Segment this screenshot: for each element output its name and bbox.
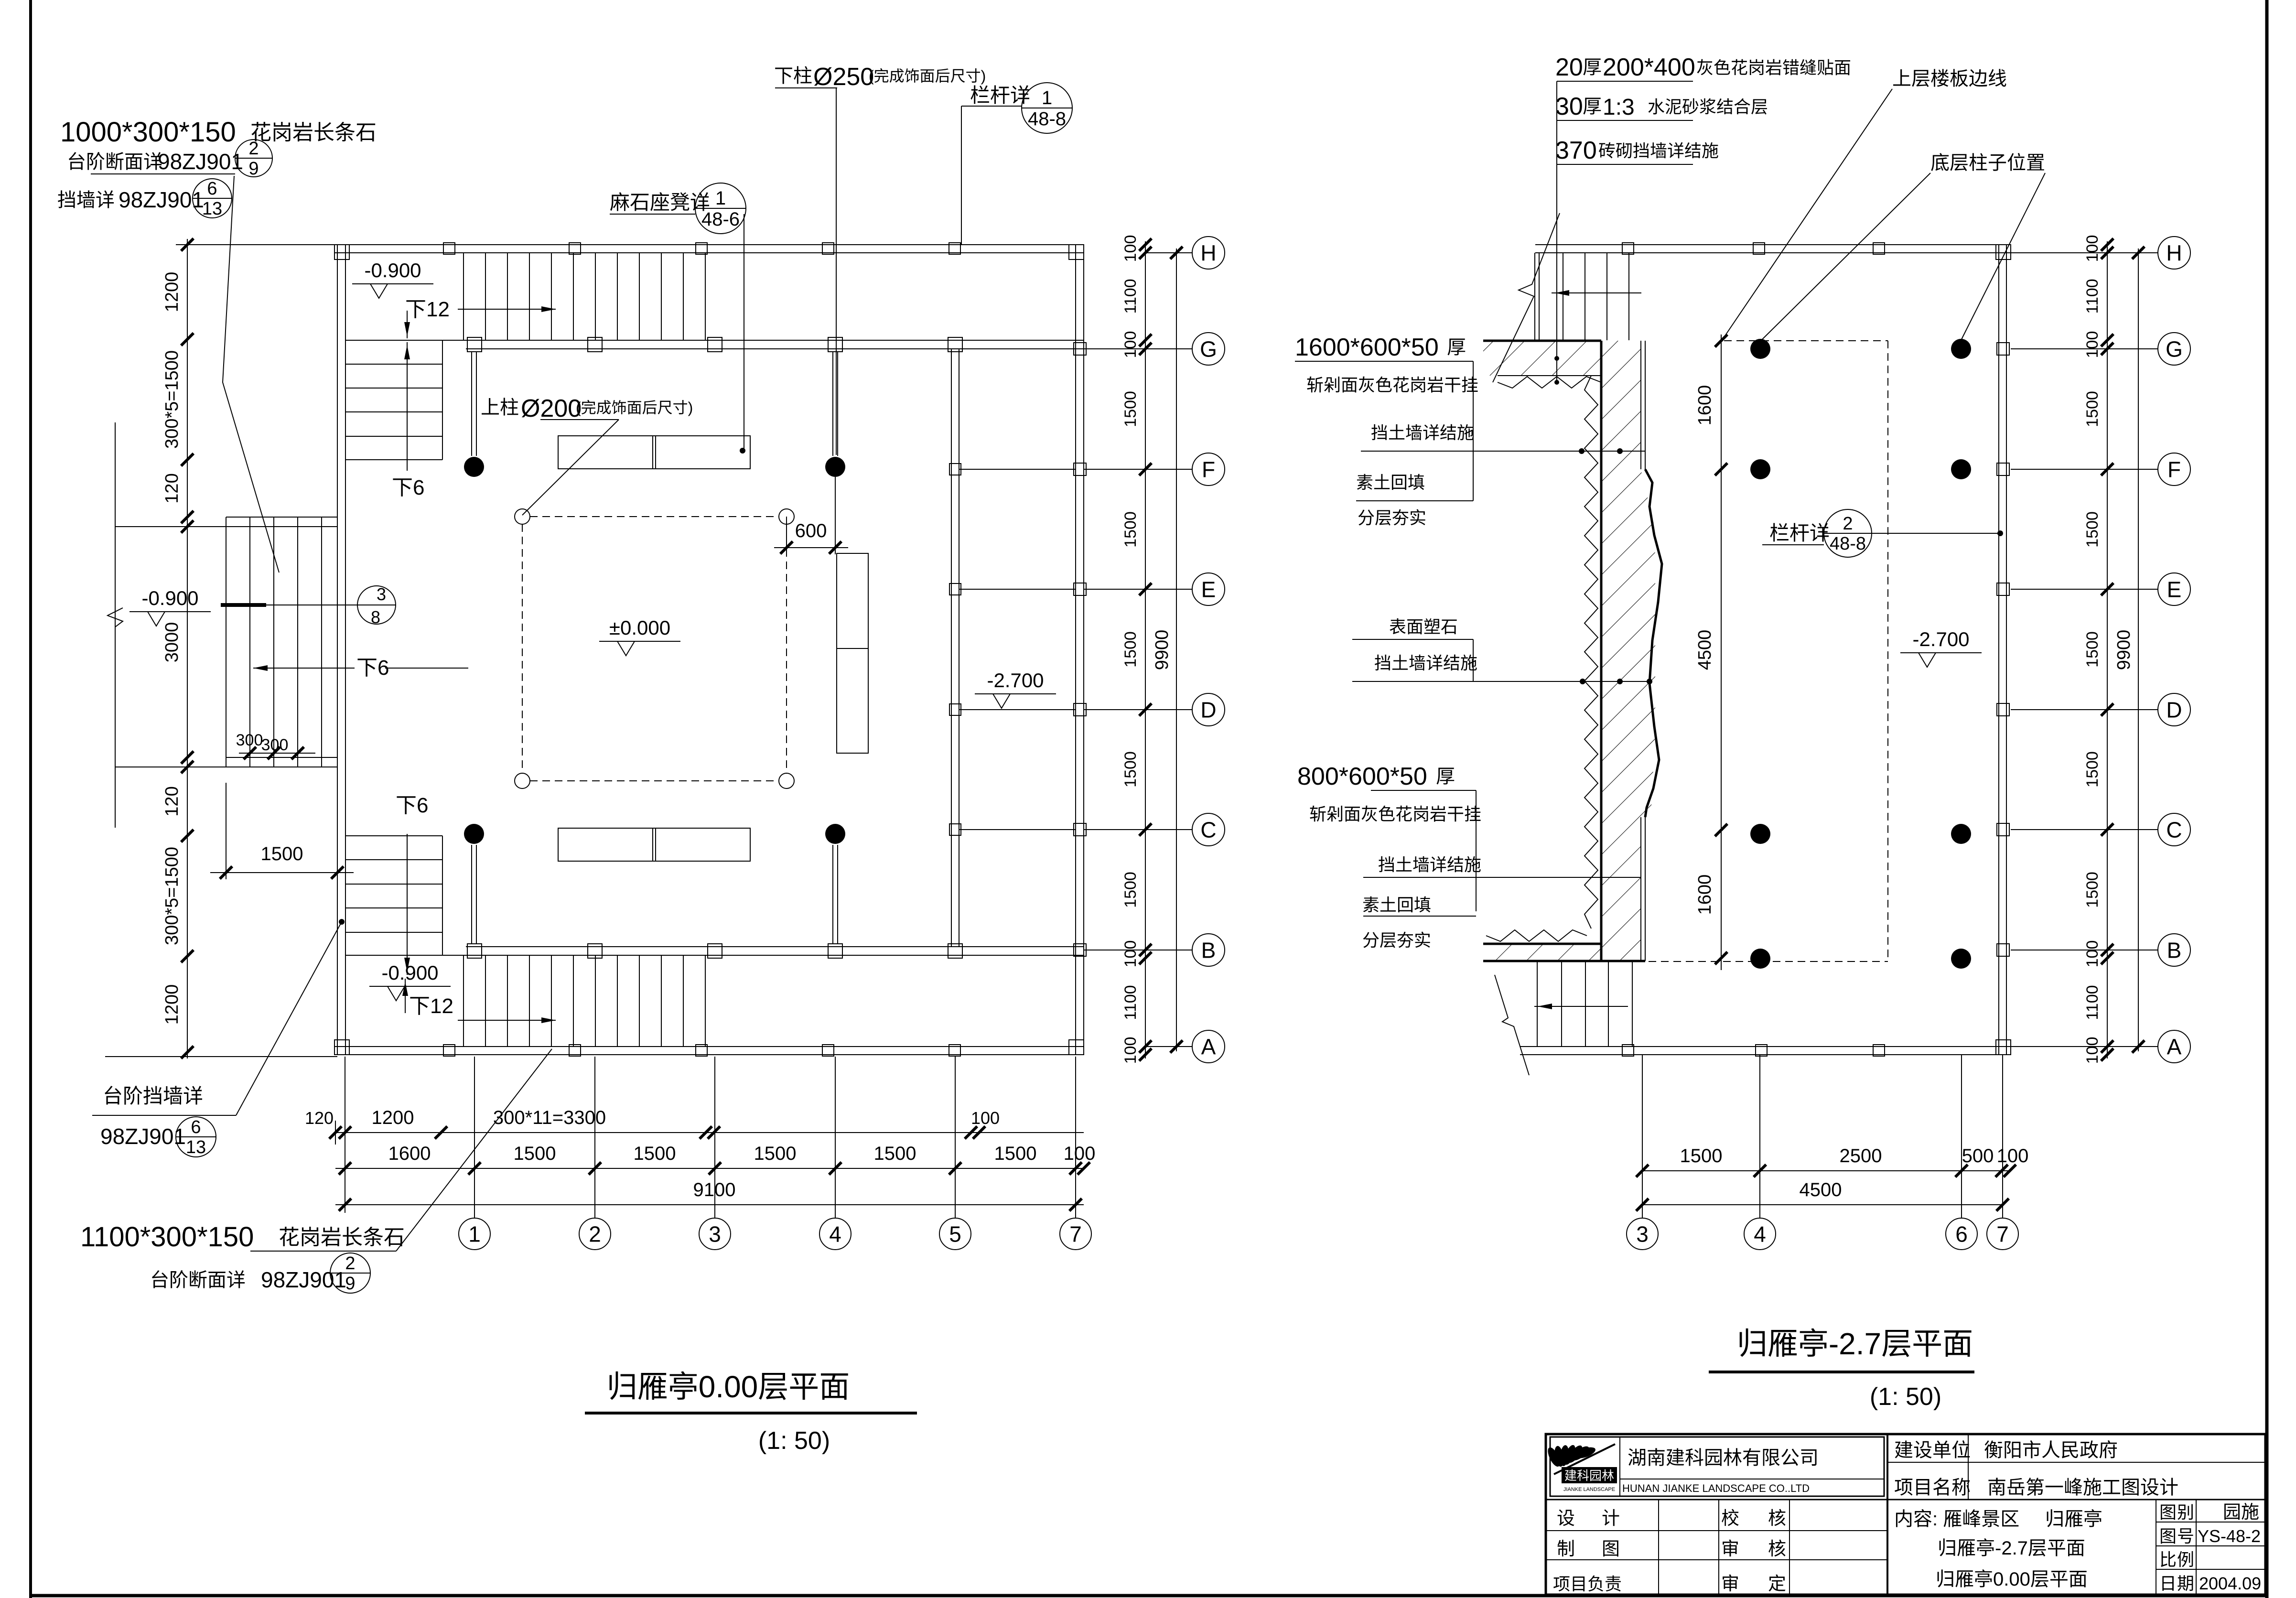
svg-text:下柱: 下柱: [774, 65, 812, 86]
svg-text:C: C: [2166, 818, 2182, 842]
svg-text:48-8: 48-8: [1028, 108, 1066, 130]
svg-text:B: B: [2167, 938, 2182, 963]
svg-text:100: 100: [1121, 331, 1140, 358]
svg-text:1: 1: [1042, 87, 1052, 108]
svg-text:2500: 2500: [1840, 1145, 1882, 1166]
svg-text:挡土墙详结施: 挡土墙详结施: [1374, 653, 1477, 673]
svg-text:上层楼板边线: 上层楼板边线: [1892, 68, 2007, 89]
svg-text:厚: 厚: [1583, 57, 1602, 78]
svg-text:湖南建科园林有限公司: 湖南建科园林有限公司: [1628, 1447, 1819, 1468]
svg-text:9900: 9900: [1152, 630, 1172, 670]
svg-text:期: 期: [2177, 1574, 2194, 1593]
svg-text:E: E: [1201, 577, 1216, 602]
svg-text:98ZJ901: 98ZJ901: [261, 1267, 346, 1292]
svg-text:100: 100: [1997, 1145, 2029, 1166]
svg-text:1600: 1600: [1695, 385, 1715, 426]
svg-text:1100: 1100: [1121, 985, 1140, 1020]
svg-text:砖砌挡墙详结施: 砖砌挡墙详结施: [1598, 141, 1719, 161]
svg-text:1200: 1200: [162, 272, 182, 313]
svg-text:定: 定: [1768, 1574, 1786, 1594]
svg-text:-2.700: -2.700: [987, 669, 1044, 691]
svg-text:6: 6: [1955, 1222, 1968, 1247]
svg-text:建科园林: 建科园林: [1564, 1468, 1614, 1483]
svg-text:1500: 1500: [1680, 1145, 1723, 1166]
svg-text:120: 120: [162, 473, 182, 503]
svg-text:3: 3: [709, 1222, 721, 1247]
svg-text:台阶断面详: 台阶断面详: [150, 1270, 246, 1291]
svg-text:下12: 下12: [409, 994, 453, 1018]
svg-text:300: 300: [261, 736, 289, 754]
svg-text:归雁亭-2.7层平面: 归雁亭-2.7层平面: [1938, 1538, 2085, 1559]
svg-text:1000*300*150: 1000*300*150: [60, 117, 236, 148]
svg-text:计: 计: [1602, 1509, 1620, 1529]
svg-text:9: 9: [345, 1274, 355, 1294]
svg-text:1500: 1500: [1121, 631, 1140, 668]
svg-text:衡阳市人民政府: 衡阳市人民政府: [1984, 1440, 2118, 1461]
svg-text:48-8: 48-8: [1830, 534, 1866, 554]
svg-text:4500: 4500: [1800, 1179, 1842, 1200]
svg-text:核: 核: [1768, 1539, 1786, 1559]
svg-text:校: 校: [1721, 1509, 1739, 1529]
svg-text:2004.09: 2004.09: [2199, 1574, 2261, 1593]
svg-text:YS-48-2: YS-48-2: [2198, 1526, 2261, 1546]
svg-text:100: 100: [2083, 1037, 2102, 1064]
svg-text:斩剁面灰色花岗岩干挂: 斩剁面灰色花岗岩干挂: [1306, 375, 1478, 395]
svg-text:2: 2: [1843, 514, 1853, 534]
svg-text:设: 设: [1557, 1509, 1575, 1529]
svg-text:审: 审: [1721, 1539, 1739, 1559]
svg-text:花岗岩长条石: 花岗岩长条石: [250, 121, 377, 144]
svg-text:1500: 1500: [2083, 631, 2102, 668]
svg-text:别: 别: [2177, 1502, 2194, 1522]
svg-text:B: B: [1201, 938, 1216, 963]
svg-text:120: 120: [162, 786, 182, 816]
svg-text:800*600*50: 800*600*50: [1297, 763, 1427, 790]
svg-text:栏杆详: 栏杆详: [1769, 522, 1830, 544]
svg-text:100: 100: [2083, 940, 2102, 968]
svg-text:200*400: 200*400: [1603, 54, 1695, 81]
svg-text:HUNAN JIANKE LANDSCAPE CO..LTD: HUNAN JIANKE LANDSCAPE CO..LTD: [1622, 1482, 1810, 1494]
svg-text:-0.900: -0.900: [141, 587, 198, 609]
svg-text:1: 1: [715, 188, 726, 209]
svg-text:4500: 4500: [1695, 630, 1715, 670]
svg-text:(完成饰面后尺寸): (完成饰面后尺寸): [869, 67, 986, 85]
svg-text:600: 600: [795, 520, 827, 541]
svg-text:内容: 雁峰景区: 内容: 雁峰景区: [1894, 1509, 2019, 1530]
svg-text:1500: 1500: [2083, 751, 2102, 788]
svg-text:建设单位: 建设单位: [1894, 1440, 1971, 1461]
svg-text:1100: 1100: [2083, 279, 2102, 313]
svg-text:台阶挡墙详: 台阶挡墙详: [103, 1085, 203, 1107]
svg-text:100: 100: [1121, 1037, 1140, 1064]
svg-text:3: 3: [1636, 1222, 1649, 1247]
svg-text:1200: 1200: [162, 984, 182, 1025]
svg-text:6: 6: [207, 179, 217, 199]
svg-text:7: 7: [1069, 1222, 1082, 1247]
svg-text:3: 3: [377, 584, 386, 604]
svg-text:图: 图: [2159, 1526, 2177, 1546]
svg-text:1: 1: [468, 1222, 481, 1247]
svg-text:下6: 下6: [396, 794, 428, 817]
svg-text:斩剁面灰色花岗岩干挂: 斩剁面灰色花岗岩干挂: [1309, 804, 1481, 824]
svg-text:1500: 1500: [2083, 872, 2102, 908]
svg-text:归雁亭: 归雁亭: [2045, 1509, 2102, 1530]
svg-text:100: 100: [1064, 1143, 1096, 1164]
svg-text:20: 20: [1555, 54, 1583, 81]
svg-text:下6: 下6: [356, 656, 389, 680]
svg-text:100: 100: [2083, 331, 2102, 358]
svg-text:图: 图: [2159, 1502, 2177, 1522]
svg-text:园施: 园施: [2223, 1502, 2259, 1522]
svg-text:300*5=1500: 300*5=1500: [162, 350, 182, 449]
svg-text:-0.900: -0.900: [364, 259, 421, 281]
svg-text:1100: 1100: [1121, 279, 1140, 313]
svg-text:日: 日: [2159, 1574, 2177, 1593]
svg-text:98ZJ901: 98ZJ901: [100, 1124, 186, 1149]
svg-text:底层柱子位置: 底层柱子位置: [1930, 152, 2045, 173]
svg-text:上柱: 上柱: [481, 397, 519, 418]
svg-text:灰色花岗岩错缝贴面: 灰色花岗岩错缝贴面: [1696, 58, 1851, 77]
svg-text:1500: 1500: [634, 1143, 676, 1164]
svg-text:1500: 1500: [2083, 511, 2102, 548]
svg-text:D: D: [2166, 698, 2182, 723]
svg-text:A: A: [2167, 1035, 2182, 1059]
svg-text:下12: 下12: [405, 298, 450, 321]
svg-text:100: 100: [2083, 235, 2102, 262]
svg-text:D: D: [1200, 698, 1216, 723]
svg-text:2: 2: [345, 1253, 355, 1274]
svg-text:南岳第一峰施工图设计: 南岳第一峰施工图设计: [1987, 1477, 2178, 1498]
svg-text:(1: 50): (1: 50): [1870, 1383, 1941, 1411]
svg-text:H: H: [2166, 241, 2182, 266]
svg-text:项目负责: 项目负责: [1553, 1574, 1622, 1594]
svg-text:13: 13: [202, 199, 222, 219]
svg-text:370: 370: [1555, 137, 1597, 164]
svg-text:素土回填: 素土回填: [1362, 895, 1431, 915]
svg-text:F: F: [1202, 457, 1215, 482]
svg-text:栏杆详: 栏杆详: [970, 84, 1030, 107]
svg-text:1600*600*50: 1600*600*50: [1295, 334, 1439, 361]
svg-text:1:3: 1:3: [1603, 95, 1635, 120]
svg-text:2: 2: [589, 1222, 601, 1247]
svg-text:13: 13: [186, 1137, 206, 1157]
svg-text:1500: 1500: [874, 1143, 916, 1164]
svg-text:-2.700: -2.700: [1912, 628, 1969, 650]
svg-text:3000: 3000: [162, 622, 182, 663]
svg-text:1100: 1100: [2083, 985, 2102, 1020]
svg-text:30: 30: [1555, 93, 1583, 120]
svg-text:100: 100: [1121, 940, 1140, 968]
svg-text:4: 4: [1754, 1222, 1766, 1247]
svg-text:1100*300*150: 1100*300*150: [80, 1221, 254, 1252]
svg-text:花岗岩长条石: 花岗岩长条石: [279, 1226, 405, 1249]
svg-text:JIANKE LANDSCAPE: JIANKE LANDSCAPE: [1563, 1487, 1615, 1492]
svg-text:挡墙详: 挡墙详: [57, 190, 115, 211]
svg-text:表面塑石: 表面塑石: [1389, 617, 1458, 637]
svg-text:8: 8: [371, 607, 380, 627]
svg-text:挡土墙详结施: 挡土墙详结施: [1371, 423, 1474, 443]
svg-text:制: 制: [1557, 1539, 1575, 1559]
svg-text:4: 4: [829, 1222, 841, 1247]
svg-text:审: 审: [1721, 1574, 1739, 1594]
svg-text:1500: 1500: [514, 1143, 556, 1164]
svg-text:下6: 下6: [392, 476, 424, 499]
svg-text:300*11=3300: 300*11=3300: [493, 1107, 606, 1128]
svg-text:归雁亭0.00层平面: 归雁亭0.00层平面: [607, 1370, 850, 1404]
svg-text:厚: 厚: [1447, 337, 1466, 358]
svg-text:98ZJ901: 98ZJ901: [119, 187, 204, 212]
svg-text:1200: 1200: [372, 1107, 414, 1128]
svg-text:1600: 1600: [1695, 875, 1715, 915]
svg-text:素土回填: 素土回填: [1356, 473, 1425, 492]
svg-text:(完成饰面后尺寸): (完成饰面后尺寸): [576, 399, 693, 416]
svg-text:比: 比: [2159, 1550, 2177, 1569]
svg-text:1500: 1500: [754, 1143, 797, 1164]
svg-text:100: 100: [1121, 235, 1140, 262]
svg-text:6: 6: [191, 1117, 201, 1137]
svg-text:Ø200: Ø200: [521, 395, 582, 422]
svg-text:1500: 1500: [2083, 391, 2102, 427]
svg-text:98ZJ901: 98ZJ901: [158, 149, 243, 174]
svg-text:E: E: [2167, 577, 2182, 602]
svg-text:项目名称: 项目名称: [1894, 1477, 1971, 1498]
svg-text:分层夯实: 分层夯实: [1358, 508, 1426, 528]
svg-text:5: 5: [949, 1222, 961, 1247]
svg-text:1600: 1600: [388, 1143, 431, 1164]
svg-text:A: A: [1201, 1035, 1216, 1059]
svg-text:G: G: [1200, 337, 1217, 362]
svg-text:台阶断面详: 台阶断面详: [67, 151, 162, 173]
svg-text:1500: 1500: [1121, 511, 1140, 548]
svg-text:1500: 1500: [1121, 391, 1140, 427]
svg-text:Ø250: Ø250: [813, 63, 874, 91]
svg-text:300*5=1500: 300*5=1500: [162, 847, 182, 945]
svg-text:归雁亭-2.7层平面: 归雁亭-2.7层平面: [1737, 1327, 1973, 1361]
svg-text:厚: 厚: [1583, 96, 1602, 117]
svg-text:厚: 厚: [1436, 766, 1455, 787]
svg-text:G: G: [2166, 337, 2183, 362]
svg-text:1500: 1500: [1121, 872, 1140, 908]
svg-text:120: 120: [305, 1108, 334, 1128]
svg-text:1500: 1500: [261, 843, 303, 864]
svg-text:9: 9: [248, 159, 259, 179]
svg-text:(1: 50): (1: 50): [758, 1427, 830, 1455]
svg-text:500: 500: [1962, 1145, 1994, 1166]
svg-text:例: 例: [2177, 1550, 2194, 1569]
svg-text:7: 7: [1996, 1222, 2009, 1247]
svg-text:100: 100: [971, 1108, 1000, 1128]
svg-text:号: 号: [2177, 1526, 2194, 1546]
svg-text:-0.900: -0.900: [381, 961, 438, 984]
svg-text:挡土墙详结施: 挡土墙详结施: [1378, 855, 1481, 875]
svg-text:1500: 1500: [994, 1143, 1037, 1164]
svg-text:300: 300: [236, 731, 263, 749]
svg-text:归雁亭0.00层平面: 归雁亭0.00层平面: [1936, 1569, 2088, 1590]
svg-text:1500: 1500: [1121, 751, 1140, 788]
svg-text:水泥砂浆结合层: 水泥砂浆结合层: [1648, 97, 1768, 117]
svg-text:分层夯实: 分层夯实: [1362, 930, 1431, 950]
svg-text:核: 核: [1768, 1509, 1786, 1529]
svg-text:C: C: [1200, 818, 1216, 842]
svg-text:图: 图: [1602, 1539, 1620, 1559]
svg-text:F: F: [2167, 457, 2181, 482]
svg-text:2: 2: [248, 139, 259, 159]
svg-text:H: H: [1200, 241, 1216, 266]
svg-text:±0.000: ±0.000: [609, 616, 670, 639]
svg-text:48-6: 48-6: [701, 209, 740, 230]
svg-text:9900: 9900: [2114, 630, 2134, 670]
